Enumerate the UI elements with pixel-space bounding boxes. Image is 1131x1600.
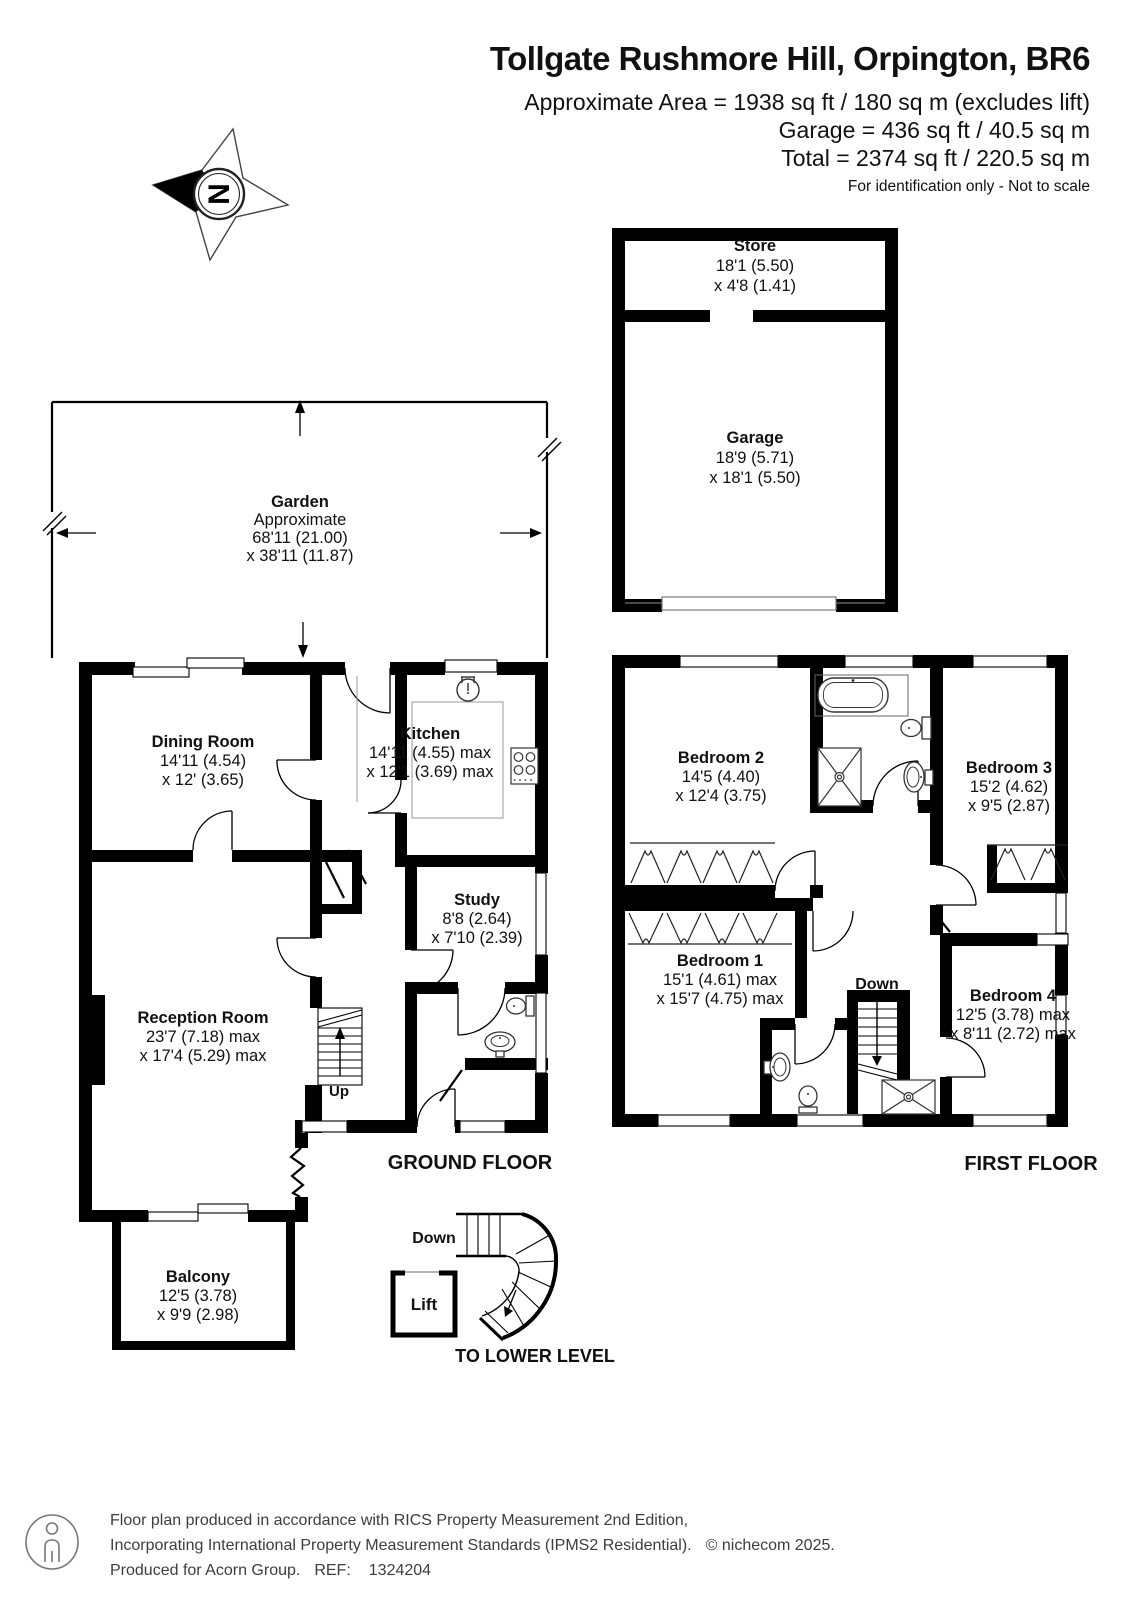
- bedroom1-wardrobe: [628, 913, 792, 944]
- bedroom-4-label: Bedroom 4 12'5 (3.78) max x 8'11 (2.72) …: [950, 987, 1076, 1044]
- room-dim: 12'5 (3.78) max: [950, 1006, 1076, 1025]
- bedroom2-wardrobe: [630, 843, 775, 883]
- first-floor-walls: [612, 655, 1068, 1127]
- footer-line-2: Incorporating International Property Mea…: [110, 1533, 835, 1558]
- first-floor-title: FIRST FLOOR: [964, 1153, 1097, 1176]
- bedroom-1-label: Bedroom 1 15'1 (4.61) max x 15'7 (4.75) …: [657, 952, 784, 1009]
- room-dim: 14'11 (4.54): [152, 752, 255, 771]
- stairs-up: [318, 1008, 362, 1085]
- room-dim: x 9'5 (2.87): [966, 797, 1052, 816]
- room-dim: x 15'7 (4.75) max: [657, 990, 784, 1009]
- approximate-area-line: Approximate Area = 1938 sq ft / 180 sq m…: [490, 88, 1090, 116]
- room-dim: x 12'4 (3.75): [675, 787, 766, 806]
- room-dim: x 8'11 (2.72) max: [950, 1025, 1076, 1044]
- room-dim: 12'5 (3.78): [157, 1287, 239, 1306]
- room-name: Bedroom 4: [950, 987, 1076, 1006]
- stairs-down: [858, 999, 897, 1080]
- balcony-label: Balcony 12'5 (3.78) x 9'9 (2.98): [157, 1268, 239, 1325]
- wc-toilet-icon: [507, 996, 535, 1016]
- bedroom-2-label: Bedroom 2 14'5 (4.40) x 12'4 (3.75): [675, 749, 766, 806]
- garden-label: Garden Approximate 68'11 (21.00) x 38'11…: [246, 493, 353, 565]
- garage-door: [662, 597, 836, 610]
- room-name: Balcony: [157, 1268, 239, 1287]
- room-name: Study: [431, 891, 522, 910]
- open-wall-zigzag: [291, 1148, 304, 1197]
- room-dim: x 12'1 (3.69) max: [367, 763, 494, 782]
- room-dim: 18'9 (5.71): [709, 448, 800, 468]
- to-lower-level-title: TO LOWER LEVEL: [455, 1346, 615, 1367]
- room-name: Bedroom 3: [966, 759, 1052, 778]
- ground-floor-title: GROUND FLOOR: [388, 1152, 552, 1175]
- room-dim: x 17'4 (5.29) max: [137, 1047, 268, 1066]
- ensuite-toilet-icon: [799, 1086, 817, 1113]
- page-title: Tollgate Rushmore Hill, Orpington, BR6: [490, 40, 1090, 78]
- room-dim: 18'1 (5.50): [714, 256, 796, 276]
- kitchen-sink-icon: [457, 677, 479, 701]
- room-name: Reception Room: [137, 1009, 268, 1028]
- produced-for-text: Produced for Acorn Group.: [110, 1562, 300, 1579]
- room-name: Kitchen: [367, 725, 494, 744]
- bathroom-basin-icon: [904, 762, 933, 792]
- room-dim: x 18'1 (5.50): [709, 468, 800, 488]
- compass-north-letter: N: [203, 183, 236, 205]
- bathroom-toilet-icon: [901, 717, 931, 739]
- footer: Floor plan produced in accordance with R…: [110, 1508, 835, 1583]
- total-area-line: Total = 2374 sq ft / 220.5 sq m: [490, 144, 1090, 172]
- landing-shower-icon: [882, 1080, 935, 1114]
- room-dim: x 12' (3.65): [152, 771, 255, 790]
- room-name: Bedroom 1: [657, 952, 784, 971]
- first-floor-plan: [612, 655, 1068, 1127]
- garage-area-line: Garage = 436 sq ft / 40.5 sq m: [490, 116, 1090, 144]
- room-dim: 15'1 (4.61) max: [657, 971, 784, 990]
- bedroom-3-label: Bedroom 3 15'2 (4.62) x 9'5 (2.87): [966, 759, 1052, 816]
- person-icon: [24, 1514, 80, 1572]
- header: Tollgate Rushmore Hill, Orpington, BR6 A…: [490, 40, 1090, 196]
- compass-icon: N: [153, 129, 288, 260]
- room-dim: 68'11 (21.00): [246, 529, 353, 547]
- study-label: Study 8'8 (2.64) x 7'10 (2.39): [431, 891, 522, 948]
- down-label-first: Down: [855, 976, 899, 994]
- ref-label: REF:: [314, 1562, 350, 1579]
- room-dim: 15'2 (4.62): [966, 778, 1052, 797]
- room-dim: x 9'9 (2.98): [157, 1306, 239, 1325]
- garage-label: Garage 18'9 (5.71) x 18'1 (5.50): [709, 428, 800, 488]
- bathroom-shower-icon: [818, 748, 861, 806]
- room-dim: 23'7 (7.18) max: [137, 1028, 268, 1047]
- room-dim: x 4'8 (1.41): [714, 276, 796, 296]
- ref-value: 1324204: [369, 1562, 431, 1579]
- room-dim: 14'5 (4.40): [675, 768, 766, 787]
- lift-label: Lift: [411, 1295, 437, 1315]
- room-dim: x 7'10 (2.39): [431, 929, 522, 948]
- up-label: Up: [329, 1083, 349, 1100]
- dining-room-label: Dining Room 14'11 (4.54) x 12' (3.65): [152, 733, 255, 790]
- bathtub-icon: [815, 675, 908, 716]
- room-dim: 14'11 (4.55) max: [367, 744, 494, 763]
- footer-line-3: Produced for Acorn Group.REF:1324204: [110, 1558, 835, 1583]
- down-label-ground: Down: [412, 1230, 456, 1248]
- room-name: Garden: [246, 493, 353, 511]
- room-dim: x 38'11 (11.87): [246, 547, 353, 565]
- kitchen-label: Kitchen 14'11 (4.55) max x 12'1 (3.69) m…: [367, 725, 494, 782]
- room-name: Bedroom 2: [675, 749, 766, 768]
- store-label: Store 18'1 (5.50) x 4'8 (1.41): [714, 236, 796, 296]
- wc-basin-icon: [485, 1032, 515, 1057]
- reception-room-label: Reception Room 23'7 (7.18) max x 17'4 (5…: [137, 1009, 268, 1066]
- room-dim: 8'8 (2.64): [431, 910, 522, 929]
- room-name: Garage: [709, 428, 800, 448]
- room-name: Dining Room: [152, 733, 255, 752]
- room-name: Store: [714, 236, 796, 256]
- kitchen-hob-icon: [511, 748, 538, 784]
- footer-standards-text: Incorporating International Property Mea…: [110, 1537, 692, 1554]
- floorplan-page: N: [0, 0, 1131, 1600]
- copyright-text: © nichecom 2025.: [706, 1537, 835, 1554]
- room-note: Approximate: [246, 511, 353, 529]
- disclaimer-text: For identification only - Not to scale: [490, 178, 1090, 196]
- footer-line-1: Floor plan produced in accordance with R…: [110, 1508, 835, 1533]
